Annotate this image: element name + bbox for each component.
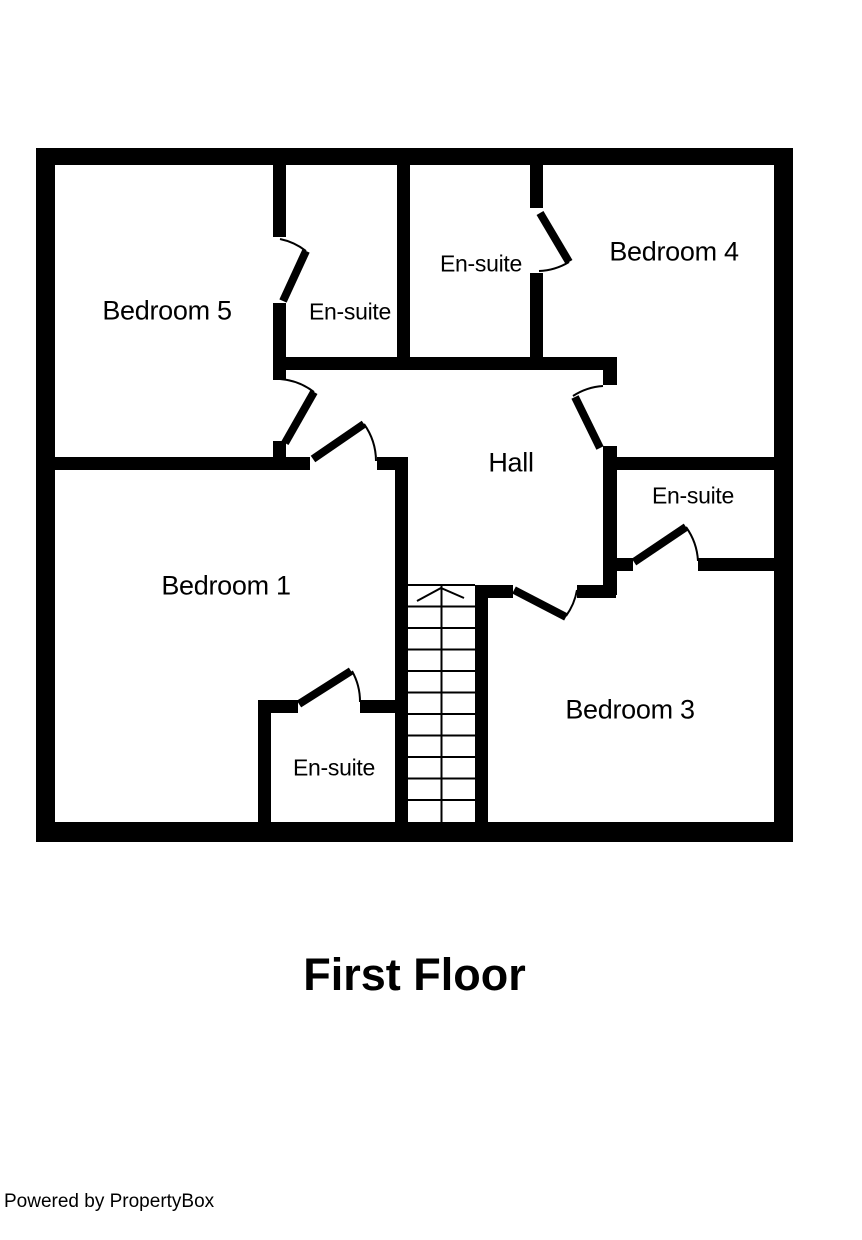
wall-ensuite-bed4-upper: [530, 165, 543, 208]
room-label-ensuite-bedroom1: En-suite: [293, 757, 375, 780]
powered-by-text: Powered by PropertyBox: [4, 1191, 214, 1214]
wall-bed5-bed1-divider: [55, 457, 310, 470]
door-arc-hall-bed4: [573, 386, 603, 396]
wall-bed5-ensuite-upper: [273, 165, 286, 237]
wall-bed3-top-right: [577, 585, 616, 598]
wall-ensuite3-bottom-right: [698, 558, 774, 571]
door-arc-bed1-ensuite: [352, 671, 360, 702]
staircase: [408, 585, 475, 822]
wall-ensuite3-bottom-left: [615, 558, 633, 571]
door-arc-hall-bed5: [280, 379, 314, 392]
room-label-bedroom5: Bedroom 5: [102, 298, 231, 325]
door-leaf-hall-bed1: [313, 424, 364, 459]
wall-bed4-ensuite3-divider: [603, 457, 774, 470]
door-arc-hall-bed1: [364, 424, 376, 461]
door-leaf-bed1-ensuite: [299, 671, 351, 704]
wall-ensuite-bed4-lower: [530, 273, 543, 357]
wall-outer-bottom: [36, 822, 793, 842]
door-leaf-hall-bed5: [285, 392, 314, 443]
wall-stairs-right: [475, 585, 488, 822]
wall-bed5-hall-lower: [273, 441, 286, 457]
wall-ensuite-divider: [397, 165, 410, 357]
door-arc-hall-bed3: [566, 590, 577, 616]
door-leaf-bed4-ensuite: [540, 213, 569, 262]
room-label-bedroom1: Bedroom 1: [161, 573, 290, 600]
room-label-ensuite-bedroom4: En-suite: [440, 253, 522, 276]
room-label-bedroom3: Bedroom 3: [565, 697, 694, 724]
door-arc-bed3-ensuite: [686, 527, 698, 561]
wall-hall-bed4-upper: [603, 357, 617, 385]
floorplan-page: Bedroom 5 En-suite En-suite Bedroom 4 Ha…: [0, 0, 862, 1240]
room-label-ensuite-bedroom5: En-suite: [309, 301, 391, 324]
wall-ensuite1-left: [258, 700, 271, 822]
door-leaf-hall-bed4: [575, 397, 600, 448]
wall-outer-right: [774, 148, 793, 842]
room-label-bedroom4: Bedroom 4: [609, 239, 738, 266]
wall-outer-left: [36, 148, 55, 842]
door-leaf-bed3-ensuite: [634, 527, 686, 562]
room-label-hall: Hall: [488, 450, 533, 477]
door-arc-bed4-ensuite: [539, 262, 569, 271]
door-leaf-hall-bed3: [514, 590, 566, 617]
floorplan-drawing: [0, 0, 862, 880]
room-label-ensuite-bedroom3: En-suite: [652, 485, 734, 508]
wall-stairs-left: [395, 457, 408, 822]
wall-ensuite1-top-right: [360, 700, 408, 713]
wall-hall-top: [273, 357, 617, 370]
door-leaf-bed5-ensuite: [283, 251, 306, 301]
floor-title: First Floor: [36, 952, 793, 997]
door-arc-bed5-ensuite: [280, 239, 306, 251]
wall-outer-top: [36, 148, 793, 165]
